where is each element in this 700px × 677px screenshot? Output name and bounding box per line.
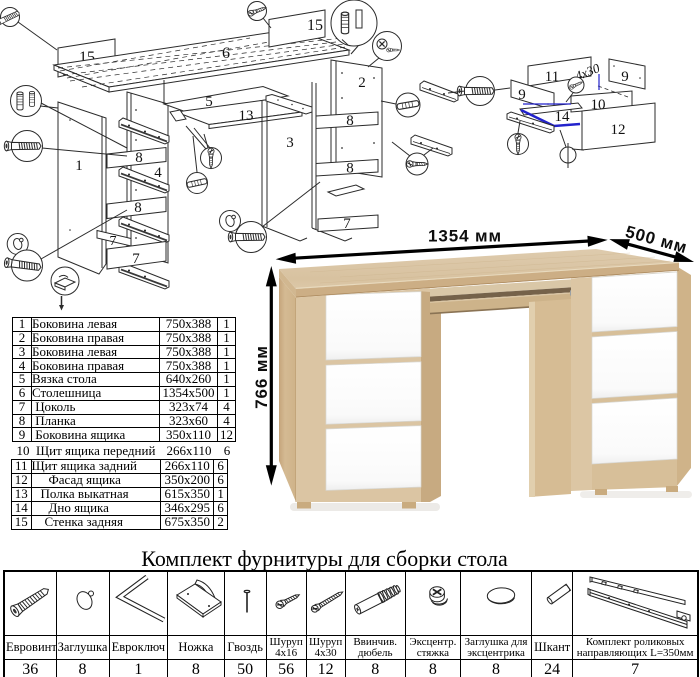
- svg-text:14: 14: [555, 109, 571, 125]
- svg-text:2: 2: [358, 75, 366, 91]
- svg-text:8: 8: [135, 150, 143, 166]
- svg-text:8: 8: [134, 200, 142, 216]
- svg-text:6: 6: [222, 45, 230, 62]
- svg-text:3: 3: [286, 135, 294, 151]
- svg-text:7: 7: [132, 251, 140, 267]
- svg-text:4: 4: [154, 165, 162, 181]
- svg-text:766 мм: 766 мм: [252, 345, 271, 409]
- svg-text:8: 8: [346, 113, 354, 129]
- svg-text:11: 11: [545, 69, 559, 85]
- svg-text:9: 9: [621, 69, 629, 85]
- svg-text:7: 7: [110, 234, 117, 249]
- svg-text:1: 1: [75, 158, 83, 174]
- svg-text:13: 13: [239, 108, 254, 124]
- svg-text:9: 9: [518, 87, 526, 103]
- svg-text:15: 15: [307, 17, 323, 34]
- svg-text:8: 8: [346, 161, 354, 177]
- svg-text:12: 12: [611, 122, 626, 138]
- svg-text:1354 мм: 1354 мм: [428, 227, 502, 246]
